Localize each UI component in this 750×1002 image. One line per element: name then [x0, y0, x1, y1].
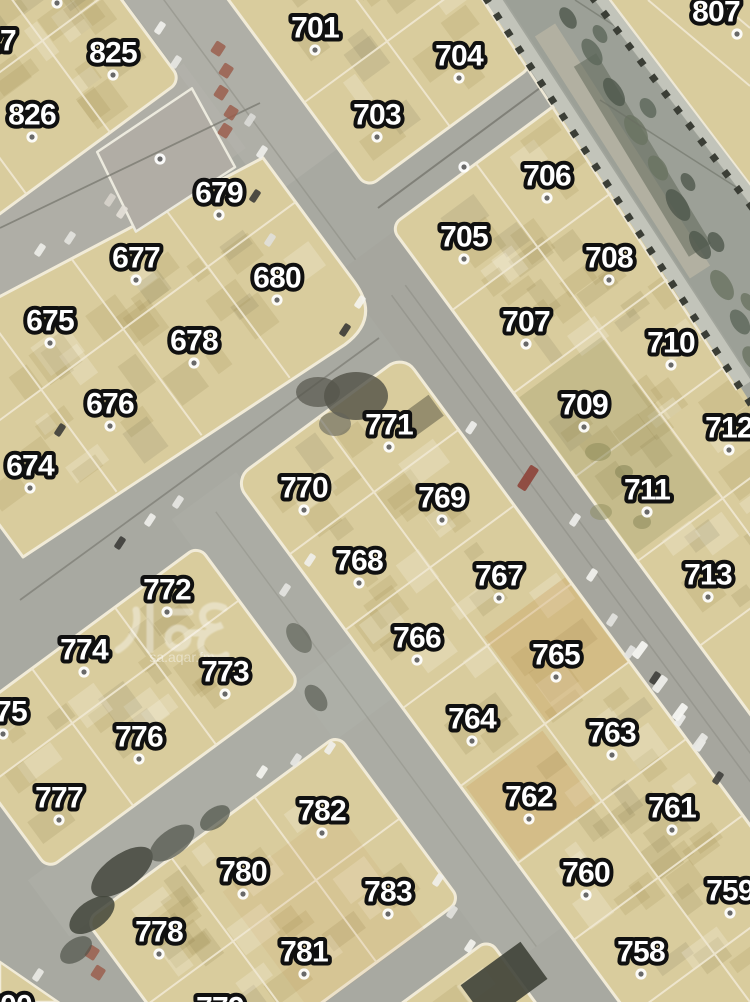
svg-text:708: 708	[585, 242, 633, 275]
svg-text:703: 703	[353, 99, 401, 132]
svg-text:710: 710	[647, 327, 695, 360]
svg-text:826: 826	[8, 99, 56, 132]
svg-text:768: 768	[335, 545, 383, 578]
svg-text:800: 800	[0, 990, 32, 1002]
svg-text:778: 778	[135, 916, 183, 949]
svg-text:679: 679	[195, 177, 243, 210]
svg-text:713: 713	[684, 559, 732, 592]
svg-text:766: 766	[393, 622, 441, 655]
svg-text:781: 781	[280, 936, 328, 969]
svg-text:773: 773	[201, 656, 249, 689]
svg-text:707: 707	[502, 306, 550, 339]
svg-text:712: 712	[705, 412, 750, 445]
svg-text:779: 779	[196, 992, 244, 1002]
svg-text:780: 780	[219, 856, 267, 889]
svg-text:770: 770	[280, 472, 328, 505]
svg-text:675: 675	[26, 305, 74, 338]
svg-text:782: 782	[298, 795, 346, 828]
svg-text:771: 771	[365, 409, 413, 442]
svg-text:709: 709	[560, 389, 608, 422]
svg-text:762: 762	[505, 781, 553, 814]
svg-text:676: 676	[86, 388, 134, 421]
svg-text:769: 769	[418, 482, 466, 515]
svg-text:701: 701	[291, 12, 339, 45]
svg-text:761: 761	[648, 792, 696, 825]
svg-text:767: 767	[475, 560, 523, 593]
svg-text:677: 677	[112, 242, 160, 275]
svg-text:680: 680	[253, 262, 301, 295]
svg-text:783: 783	[364, 876, 412, 909]
svg-text:704: 704	[435, 40, 484, 73]
svg-text:776: 776	[115, 721, 163, 754]
svg-text:711: 711	[624, 474, 670, 507]
svg-text:775: 775	[0, 696, 27, 729]
svg-text:674: 674	[6, 450, 55, 483]
svg-text:706: 706	[523, 160, 571, 193]
svg-text:758: 758	[617, 936, 665, 969]
svg-text:827: 827	[0, 25, 16, 58]
svg-text:678: 678	[170, 325, 218, 358]
svg-text:763: 763	[588, 717, 636, 750]
svg-text:759: 759	[706, 875, 750, 908]
svg-text:774: 774	[60, 634, 109, 667]
svg-text:777: 777	[35, 782, 83, 815]
svg-text:764: 764	[448, 703, 497, 736]
svg-text:760: 760	[562, 857, 610, 890]
svg-text:825: 825	[89, 37, 137, 70]
svg-text:772: 772	[143, 574, 191, 607]
svg-text:765: 765	[532, 639, 580, 672]
svg-text:807: 807	[692, 0, 740, 29]
svg-text:705: 705	[440, 221, 488, 254]
